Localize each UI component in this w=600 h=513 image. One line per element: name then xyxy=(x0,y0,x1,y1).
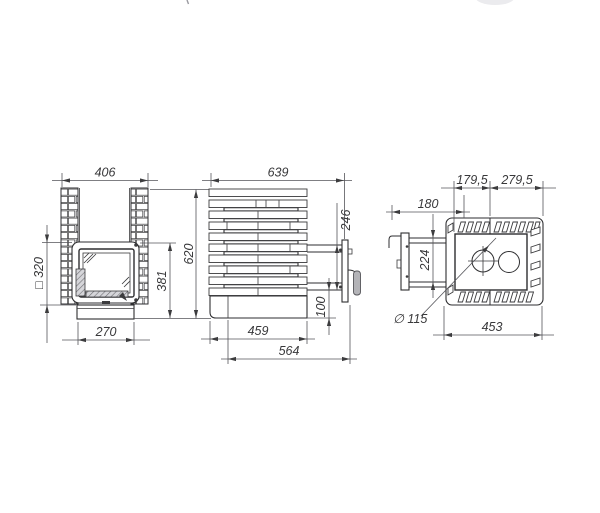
front-base xyxy=(77,305,134,319)
side-base xyxy=(210,296,307,318)
dim-label-459: 459 xyxy=(248,324,269,338)
dim-label-224: 224 xyxy=(418,250,432,272)
door-hinge-top xyxy=(134,243,138,247)
handle-grip xyxy=(354,271,361,295)
top-mount-plate xyxy=(401,233,409,290)
stove-door xyxy=(72,242,139,304)
dim-label-270: 270 xyxy=(95,325,117,339)
mount-bolt-bottom xyxy=(339,286,342,289)
top-view: 179,5 279,5 180 224 ∅ 115 xyxy=(386,173,556,340)
dim-base-depth: 459 xyxy=(201,321,315,344)
dim-handle-depth: 180 xyxy=(386,195,470,220)
dim-label-453: 453 xyxy=(482,320,503,334)
top-plate-tab xyxy=(397,260,401,268)
dim-label-279-5: 279,5 xyxy=(500,173,532,187)
plate-tab xyxy=(348,249,352,254)
door-inner-frame xyxy=(79,249,134,297)
stove-dimension-drawing: 406 □ 320 381 620 xyxy=(0,0,600,513)
dim-label-d115: ∅ 115 xyxy=(393,312,427,326)
dim-base-width: 270 xyxy=(62,322,150,345)
dim-label-620: 620 xyxy=(182,244,196,265)
dim-label-564: 564 xyxy=(279,344,300,358)
dim-label-246: 246 xyxy=(339,210,353,232)
dim-label-639: 639 xyxy=(268,166,289,180)
top-bolt-upper xyxy=(406,245,409,248)
front-view: 406 □ 320 381 620 xyxy=(32,166,211,346)
dim-mount-to-base: 100 xyxy=(307,278,336,335)
photo-fragment-artifacts xyxy=(187,0,515,5)
side-view: 639 246 100 459 xyxy=(201,166,361,365)
dim-label-406: 406 xyxy=(95,166,116,180)
dim-top-mount-span: 224 xyxy=(418,214,435,298)
side-door-mounts xyxy=(307,240,361,302)
mount-bolt-top xyxy=(339,249,342,252)
dim-label-381: 381 xyxy=(155,271,169,292)
side-slat-cage xyxy=(209,189,307,296)
dim-label-180: 180 xyxy=(418,197,439,211)
dim-front-top-width: 406 xyxy=(52,166,158,188)
dim-label-100: 100 xyxy=(314,297,328,318)
stray-mark xyxy=(187,0,189,4)
door-hinge-bottom xyxy=(134,298,138,302)
door-mount-plate xyxy=(342,240,348,302)
dim-label-179-5: 179,5 xyxy=(456,173,487,187)
cropped-photo-fragment xyxy=(475,0,515,5)
door-handle-strip xyxy=(76,269,85,296)
dim-top-overall-width: 453 xyxy=(433,306,554,340)
top-bolt-lower xyxy=(406,275,409,278)
firebox-top-plate xyxy=(455,234,527,290)
dim-label-320: □ 320 xyxy=(32,257,46,289)
door-latch xyxy=(102,301,110,304)
technical-drawing-page: 406 □ 320 381 620 xyxy=(0,0,600,513)
top-handle-hook xyxy=(389,236,401,248)
